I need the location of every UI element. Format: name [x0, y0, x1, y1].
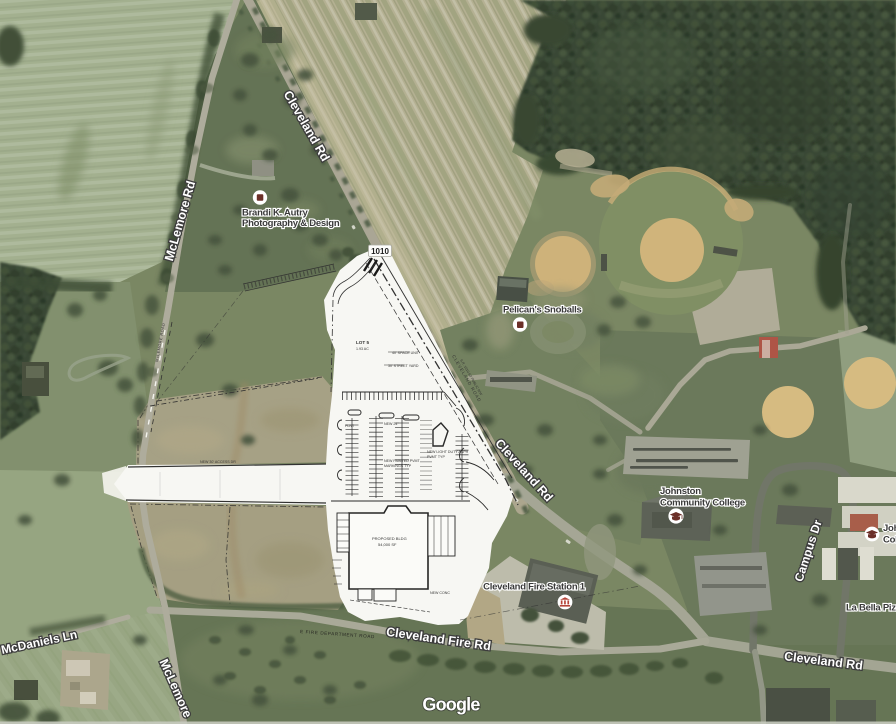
svg-text:Google: Google — [422, 695, 480, 715]
svg-text:Joh: Joh — [883, 523, 896, 534]
svg-text:Pelican's Snoballs: Pelican's Snoballs — [503, 305, 582, 316]
svg-text:Community College: Community College — [660, 498, 745, 509]
svg-text:La Bella Pizz: La Bella Pizz — [846, 603, 896, 614]
svg-text:Cleveland Fire Station 1: Cleveland Fire Station 1 — [483, 582, 586, 593]
svg-text:Johnston: Johnston — [660, 486, 701, 497]
svg-text:1010: 1010 — [371, 247, 389, 256]
svg-text:Photography & Design: Photography & Design — [242, 218, 340, 229]
svg-text:Brandi K. Autry: Brandi K. Autry — [242, 208, 309, 219]
svg-text:Col: Col — [883, 535, 896, 546]
